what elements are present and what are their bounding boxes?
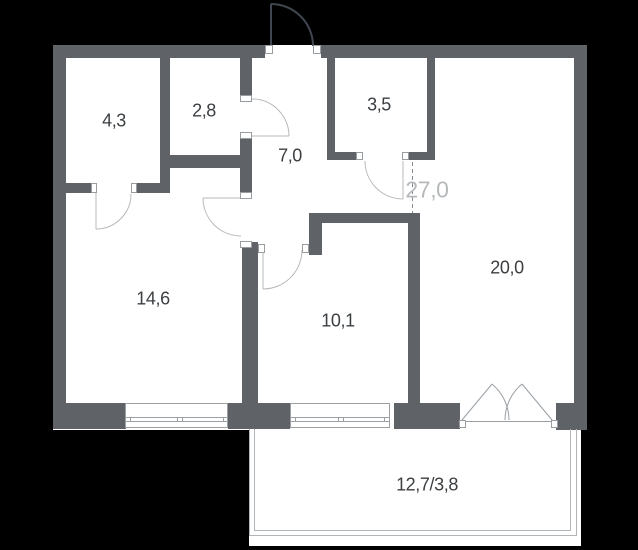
wall-bottom-right-block	[556, 403, 587, 430]
wall-room43-right	[160, 58, 170, 193]
wall-room101-top-post	[309, 223, 322, 255]
jamb-room43-right	[131, 183, 137, 193]
jamb-room28-top	[240, 95, 252, 102]
wall-room28-right-lower	[240, 139, 252, 199]
jamb-room35-left	[356, 152, 363, 160]
wall-room101-room200-separator	[408, 213, 420, 403]
wall-room101-left	[242, 242, 258, 403]
room-area-label-28: 2,8	[192, 101, 216, 122]
floor-plan: 4,3 2,8 7,0 3,5 14,6 10,1 20,0 27,0 12,7…	[0, 0, 638, 550]
jamb-hall-door-top	[240, 192, 252, 199]
wall-room35-left	[327, 58, 335, 160]
room-area-label-43: 4,3	[102, 111, 126, 132]
wall-room35-right	[427, 58, 435, 160]
wall-bottom-pier-1	[228, 403, 290, 429]
wall-bottom-pier-2	[394, 403, 460, 429]
jamb-room35-right	[402, 152, 409, 160]
wall-hall-west	[160, 155, 242, 168]
jamb-entry-right	[313, 45, 321, 54]
jamb-entry-left	[265, 45, 273, 54]
entry-door-icon	[271, 4, 313, 46]
combined-area-label: 27,0	[405, 177, 448, 204]
jamb-room101-right	[302, 244, 309, 253]
room-area-label-35: 3,5	[367, 95, 391, 116]
jamb-balcony-door-right	[551, 420, 558, 428]
wall-room43-bottom-left	[66, 183, 91, 193]
jamb-hall-door-bottom	[240, 241, 252, 248]
wall-room28-right-upper	[240, 58, 252, 96]
jamb-balcony-door-left	[459, 420, 466, 428]
wall-outer-top-left	[53, 45, 265, 58]
room-area-label-200: 20,0	[490, 258, 523, 279]
wall-outer-right	[574, 45, 587, 430]
jamb-room101-left	[258, 244, 265, 253]
wall-room43-bottom-right	[137, 183, 170, 193]
room-area-label-146: 14,6	[136, 289, 169, 310]
jamb-room43-left	[91, 183, 97, 193]
wall-outer-top-right	[321, 45, 587, 58]
room-area-label-101: 10,1	[321, 311, 354, 332]
wall-outer-left	[53, 45, 66, 429]
balcony-area-label: 12,7/3,8	[396, 475, 458, 496]
wall-room35-bottom-left	[327, 152, 356, 160]
wall-bottom-left-block	[53, 403, 126, 429]
room-area-label-70: 7,0	[278, 146, 302, 167]
jamb-room28-bottom	[240, 132, 252, 139]
wall-room101-top	[309, 213, 420, 223]
